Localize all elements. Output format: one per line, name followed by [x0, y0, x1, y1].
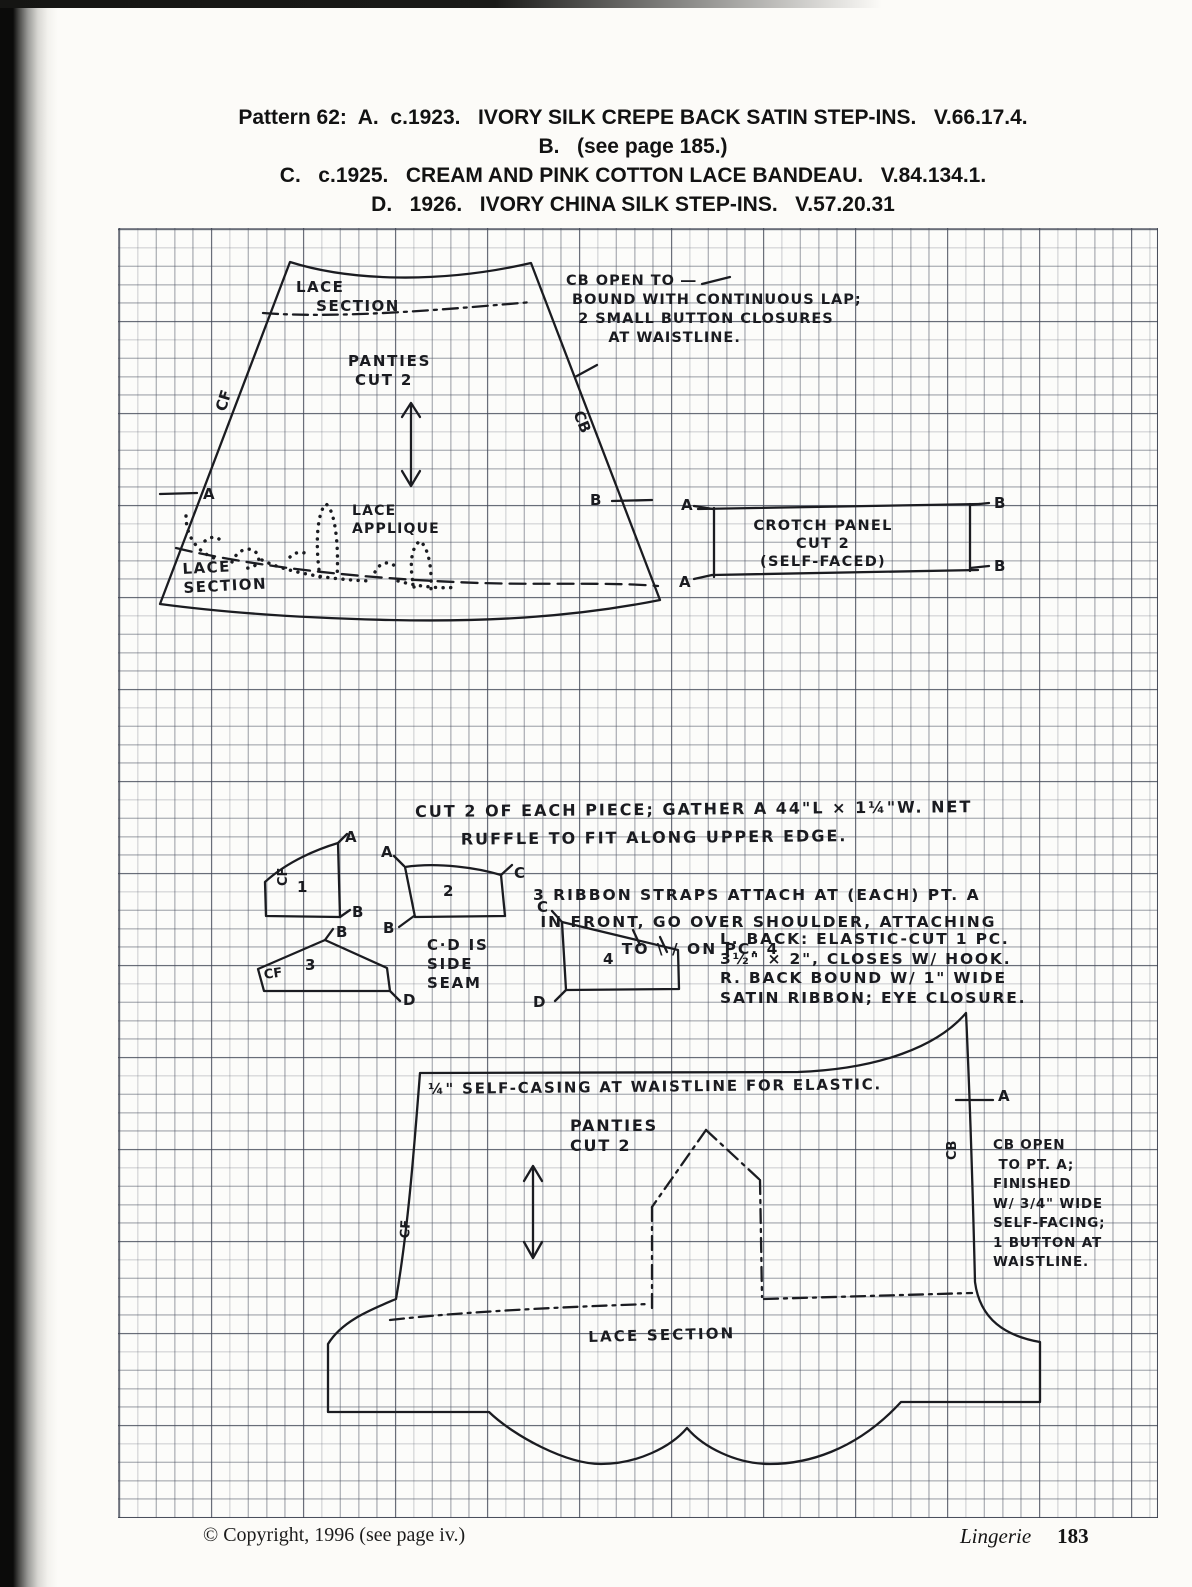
- label-piece2-c: C: [514, 864, 525, 883]
- piece2-tick-a: [394, 856, 404, 866]
- label-pt-a-bottom: A: [998, 1087, 1010, 1106]
- tick-a-left: [160, 493, 197, 494]
- pattern-drawing: [0, 0, 1192, 1587]
- label-piece1-cf: CF: [276, 868, 292, 886]
- label-panties-top: PANTIES CUT 2: [348, 352, 431, 390]
- piece3-tick-b: [325, 929, 333, 940]
- label-piece4-c: C: [537, 898, 548, 917]
- label-piece3-b: B: [336, 923, 347, 942]
- label-piece3-num: 3: [305, 956, 315, 975]
- piece2-tick-c: [501, 865, 512, 875]
- label-lback-note: L. BACK: ELASTIC-CUT 1 PC. 3½" × 2", CLO…: [720, 930, 1026, 1008]
- label-crotch-a-top: A: [681, 496, 693, 515]
- label-lace-applique: LACE APPLIQUE: [352, 503, 440, 538]
- label-piece1-a: A: [345, 828, 357, 847]
- label-piece1-num: 1: [297, 878, 307, 897]
- label-cf-bottom: CF: [398, 1220, 415, 1239]
- label-piece2-b: B: [383, 919, 394, 938]
- label-crotch-a-bottom: A: [679, 573, 691, 592]
- label-pt-b-right: B: [590, 491, 601, 510]
- gusset-dashdot: [390, 1130, 972, 1320]
- label-crotch-panel: CROTCH PANEL CUT 2 (SELF-FACED): [728, 517, 918, 571]
- running-footer: Lingerie 183: [960, 1524, 1140, 1549]
- page-number: 183: [1057, 1524, 1089, 1549]
- copyright-note: © Copyright, 1996 (see page iv.): [203, 1524, 465, 1547]
- tick-b-right: [612, 500, 652, 501]
- label-panties-bottom: PANTIES CUT 2: [570, 1116, 658, 1156]
- label-crotch-b-top: B: [994, 494, 1005, 513]
- label-lace-section-top: LACE SECTION: [296, 278, 400, 316]
- label-piece4-d: D: [533, 993, 545, 1012]
- label-crotch-b-bottom: B: [994, 557, 1005, 576]
- piece4-tick-d: [555, 990, 566, 1001]
- label-cb-open-top: CB OPEN TO ― BOUND WITH CONTINUOUS LAP; …: [566, 272, 862, 348]
- label-cb-bottom: CB: [945, 1141, 961, 1160]
- label-cd-note: C·D IS SIDE SEAM: [427, 936, 489, 993]
- book-page: Pattern 62: A. c.1923. IVORY SILK CREPE …: [0, 0, 1192, 1587]
- label-lace-section-bottom: LACE SECTION: [588, 1324, 736, 1347]
- piece2-tick-b: [399, 916, 414, 927]
- label-pt-a-left: A: [203, 485, 215, 504]
- label-piece4-num: 4: [603, 950, 613, 969]
- label-lace-section-lower-left: LACE SECTION: [182, 556, 268, 598]
- label-piece2-num: 2: [443, 882, 453, 901]
- piece2-outline: [405, 865, 505, 917]
- piece3-tick-d: [390, 991, 400, 1001]
- label-piece1-b: B: [352, 903, 363, 922]
- label-cut2-note: CUT 2 OF EACH PIECE; GATHER A 44"L × 1¼"…: [415, 793, 973, 854]
- label-piece3-cf: CF: [263, 965, 284, 984]
- running-title: Lingerie: [960, 1524, 1031, 1549]
- tick-cb-edge: [575, 365, 597, 377]
- label-piece3-d: D: [403, 991, 415, 1010]
- label-cb-open-bottom: CB OPEN TO PT. A; FINISHED W/ 3/4" WIDE …: [993, 1136, 1105, 1273]
- piece1-tick-b: [340, 910, 350, 917]
- label-piece2-a: A: [381, 843, 393, 862]
